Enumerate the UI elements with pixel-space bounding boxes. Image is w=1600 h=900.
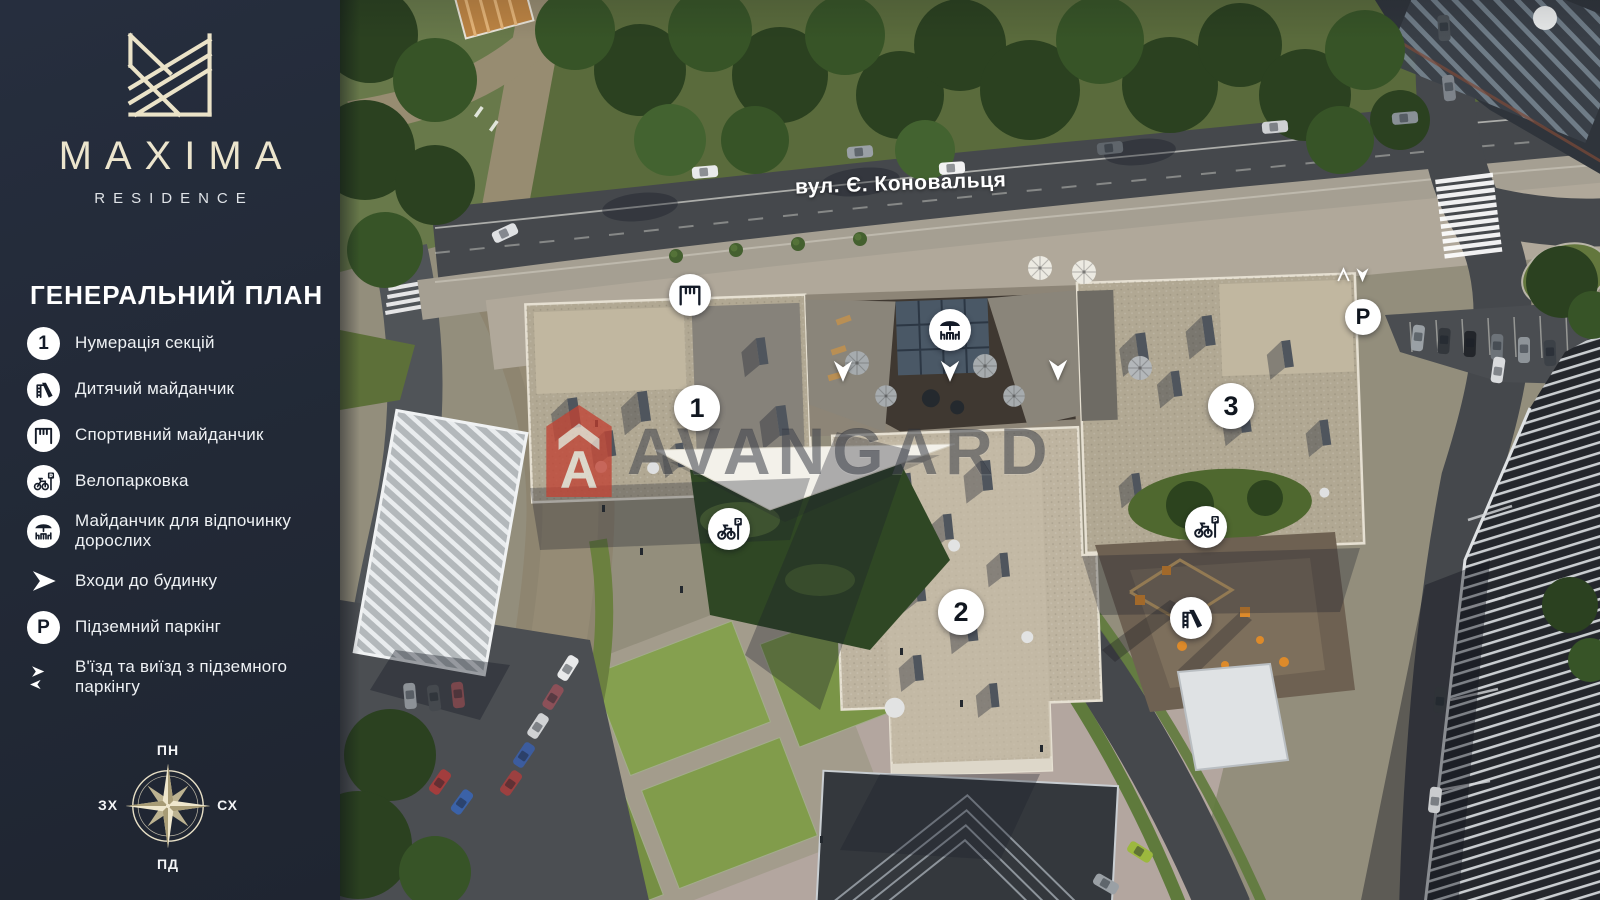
entrance-arrow-icon [27,565,60,598]
adult-rest-icon [27,515,60,548]
aerial-render [340,0,1600,900]
page-title: ГЕНЕРАЛЬНИЙ ПЛАН [30,280,323,311]
compass-west-label: ЗХ [98,797,118,813]
legend-item-underground-parking: P Підземний паркінг [27,611,323,644]
compass-rose: ПН ПД ЗХ СХ [98,734,238,876]
map-adult-rest-icon [929,309,971,351]
compass-south-label: ПД [157,856,179,872]
legend: 1 Нумерація секцій Дитячий майданчик Спо… [27,327,323,711]
playground-icon [27,373,60,406]
map-entrance-arrow-3 [1045,353,1071,387]
ramp-arrows-icon [27,661,60,694]
parking-icon: P [27,611,60,644]
compass-east-label: СХ [217,797,238,813]
map-entrance-arrow-2 [937,354,963,388]
sport-ground-icon [27,419,60,452]
compass-rose-graphic [124,762,212,850]
map-bike-parking-icon-2 [1185,506,1227,548]
legend-item-sport-ground: Спортивний майданчик [27,419,323,452]
map-section-badge-1[interactable]: 1 [674,385,720,431]
brand-subtitle: RESIDENCE [0,190,340,207]
masterplan-page: MAXIMA RESIDENCE ГЕНЕРАЛЬНИЙ ПЛАН 1 Нуме… [0,0,1600,900]
map-entrance-arrow-1 [830,354,856,388]
map-parking-badge: P [1345,299,1381,335]
compass-north-label: ПН [157,742,179,758]
legend-item-adult-rest-area: Майданчик для відпочинку дорослих [27,511,323,552]
legend-item-kids-playground: Дитячий майданчик [27,373,323,406]
legend-item-bike-parking: Велопарковка [27,465,323,498]
map-playground-icon [1170,597,1212,639]
map-section-badge-3[interactable]: 3 [1208,383,1254,429]
section-number-icon: 1 [27,327,60,360]
maxima-logo [124,28,216,122]
bike-parking-icon [27,465,60,498]
site-plan-map: A AVANGARD вул. Є. Коновальця 1 2 3 P [340,0,1600,900]
sidebar: MAXIMA RESIDENCE ГЕНЕРАЛЬНИЙ ПЛАН 1 Нуме… [0,0,340,900]
map-ramp-arrows-icon [1335,262,1371,288]
legend-item-parking-ramp: В'їзд та виїзд з підземного паркінгу [27,657,323,698]
brand-name: MAXIMA [0,134,340,179]
legend-item-section-numbering: 1 Нумерація секцій [27,327,323,360]
map-section-badge-2[interactable]: 2 [938,589,984,635]
legend-item-building-entrances: Входи до будинку [27,565,323,598]
map-sport-ground-icon [669,274,711,316]
map-bike-parking-icon-1 [708,508,750,550]
